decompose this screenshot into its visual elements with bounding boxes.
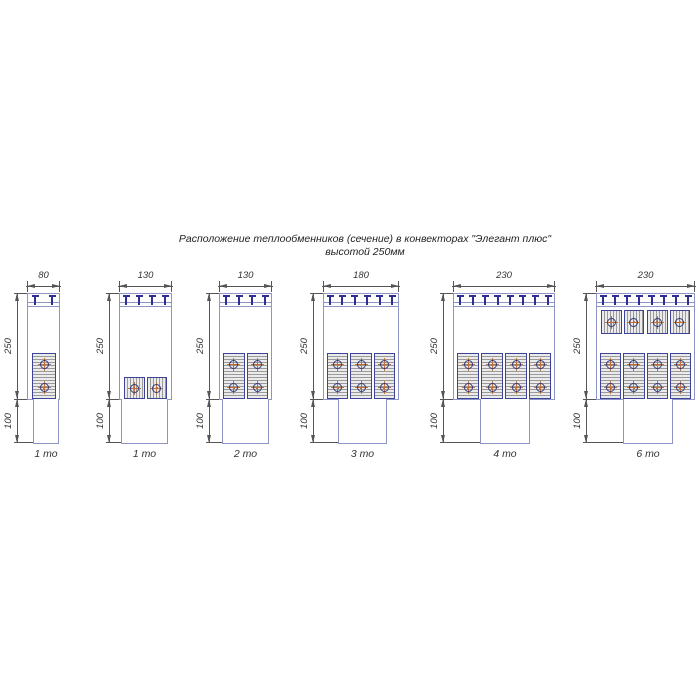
tube-center-dot — [610, 387, 612, 389]
tube-center-dot — [610, 364, 612, 366]
mounting-clip — [672, 295, 679, 305]
tube-center-dot — [633, 321, 635, 323]
tube-circle — [627, 358, 640, 371]
tube-circle — [673, 316, 686, 329]
dimension-arrow — [584, 435, 588, 443]
height-dimension-label-250: 250 — [572, 333, 584, 359]
width-dimension-label: 230 — [626, 270, 666, 282]
dimension-line — [595, 286, 696, 287]
tube-center-dot — [679, 321, 681, 323]
mounting-clip — [636, 295, 643, 305]
tube-circle — [627, 381, 640, 394]
convector-base — [623, 399, 673, 444]
dimension-arrow — [584, 399, 588, 407]
clip-stem — [614, 295, 616, 305]
dimension-arrow — [584, 293, 588, 301]
clip-stem — [687, 295, 689, 305]
clip-stem — [663, 295, 665, 305]
tube-center-dot — [656, 387, 658, 389]
tube-center-dot — [633, 387, 635, 389]
tube-center-dot — [679, 387, 681, 389]
tube-circle — [605, 316, 618, 329]
diagrams-area: 802501001 то1302501001 то1302501002 то18… — [0, 0, 700, 700]
dimension-arrow — [584, 391, 588, 399]
caption-label: 6 то — [623, 448, 673, 460]
mounting-clip — [600, 295, 607, 305]
tube-circle — [651, 316, 664, 329]
mounting-clip — [612, 295, 619, 305]
tube-circle — [674, 381, 687, 394]
tube-center-dot — [679, 364, 681, 366]
mounting-clip — [685, 295, 692, 305]
clip-stem — [651, 295, 653, 305]
clip-stem — [626, 295, 628, 305]
dim-extension-line — [583, 442, 623, 443]
tube-circle — [627, 316, 640, 329]
tube-center-dot — [610, 321, 612, 323]
tube-circle — [674, 358, 687, 371]
clip-stem — [602, 295, 604, 305]
tube-center-dot — [633, 364, 635, 366]
mounting-clip — [648, 295, 655, 305]
clip-stem — [675, 295, 677, 305]
height-dimension-label-100: 100 — [572, 408, 584, 434]
technical-drawing-canvas: Расположение теплообменников (сечение) в… — [0, 0, 700, 700]
mounting-clip — [624, 295, 631, 305]
tube-circle — [651, 381, 664, 394]
tube-circle — [604, 381, 617, 394]
dimension-arrow — [687, 284, 695, 288]
dimension-line — [586, 293, 587, 443]
mounting-clip — [660, 295, 667, 305]
tube-circle — [651, 358, 664, 371]
convector-diagram-6: 2302501006 то — [0, 0, 700, 700]
tube-circle — [604, 358, 617, 371]
dimension-arrow — [596, 284, 604, 288]
tube-center-dot — [656, 364, 658, 366]
grille-bar-line — [597, 306, 694, 307]
tube-center-dot — [656, 321, 658, 323]
clip-stem — [638, 295, 640, 305]
